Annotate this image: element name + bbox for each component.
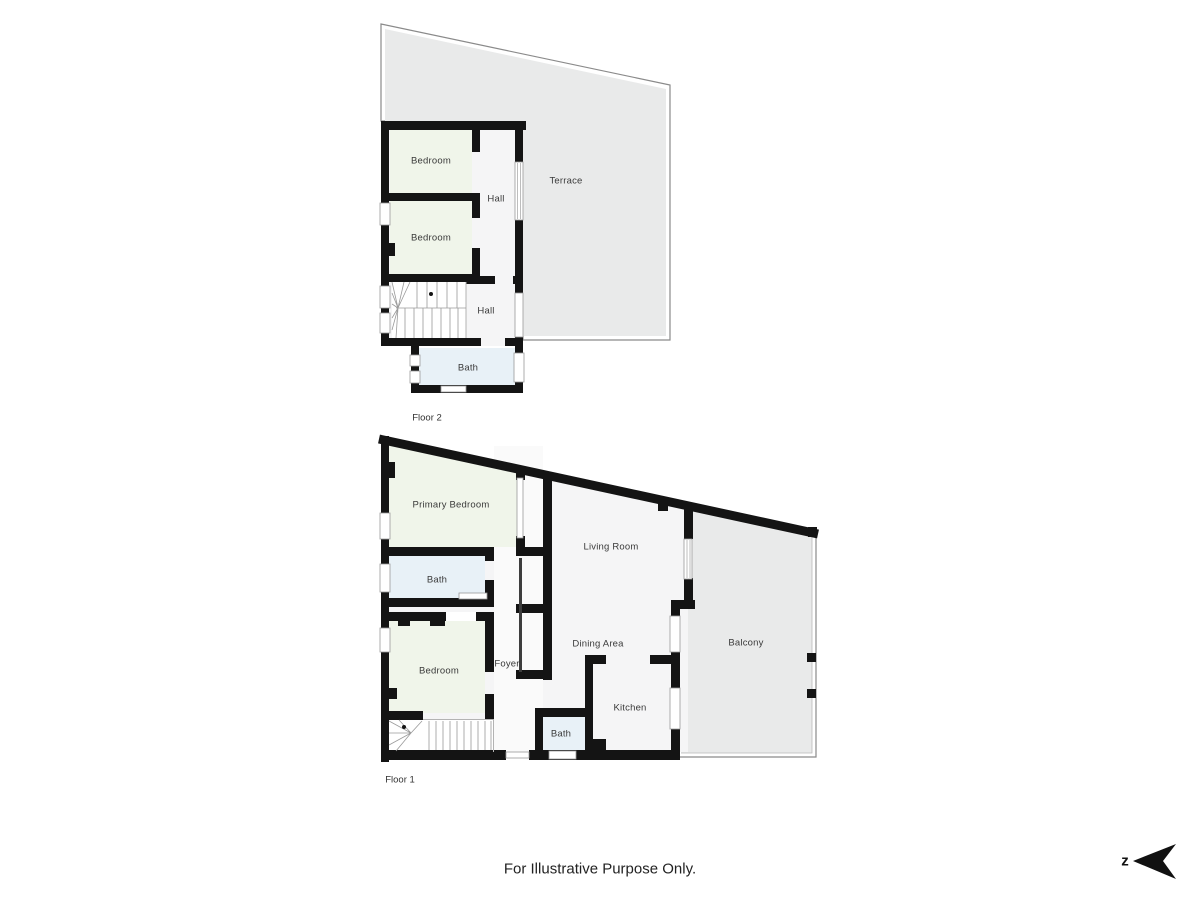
balcony-floor [681, 510, 812, 753]
wall [513, 276, 523, 284]
wall [671, 600, 695, 609]
chimney-block [585, 739, 606, 752]
room-label-bedroom1: Bedroom [411, 156, 451, 167]
north-label: z [1121, 853, 1129, 870]
wall [585, 655, 593, 752]
wall [485, 621, 494, 672]
window [380, 313, 390, 333]
wall [658, 497, 668, 511]
room-label-bath-lower: Bath [551, 729, 571, 740]
wall [411, 385, 523, 393]
wall [381, 612, 494, 621]
window [670, 616, 680, 652]
wall [389, 462, 395, 478]
window [549, 751, 576, 759]
wall [515, 121, 523, 162]
window [514, 353, 524, 382]
window-niche [459, 593, 487, 599]
stairs1-floor [389, 719, 493, 752]
wardrobe-mark [398, 621, 410, 626]
room-label-living-room: Living Room [583, 542, 638, 553]
room-label-kitchen: Kitchen [613, 703, 646, 714]
room-label-hall-lower: Hall [477, 306, 494, 317]
window [380, 513, 390, 539]
window [410, 371, 420, 383]
room-label-bath-upper: Bath [427, 575, 447, 586]
stair-marker-dot [402, 725, 406, 729]
floor1-title: Floor 1 [385, 775, 415, 786]
floor2-plan [380, 24, 670, 393]
room-label-hall-upper: Hall [487, 194, 504, 205]
wall [472, 201, 480, 218]
balcony-post [807, 653, 816, 662]
wall [485, 694, 494, 719]
room-label-bath-floor2: Bath [458, 363, 478, 374]
wall [381, 338, 481, 346]
wall [684, 504, 693, 539]
window [410, 355, 420, 366]
foyer-partition [519, 558, 522, 672]
floor1-plan [379, 436, 818, 762]
wall [485, 547, 494, 561]
window [380, 203, 390, 225]
stair-marker-dot [429, 292, 433, 296]
room-label-dining-area: Dining Area [572, 639, 623, 650]
wall [381, 121, 389, 346]
floorplan-page: { "floor2": { "title": "Floor 2", "rooms… [0, 0, 1200, 900]
wall [535, 708, 585, 717]
room-label-balcony: Balcony [728, 638, 763, 649]
balcony-area [678, 510, 816, 757]
wall [505, 338, 523, 346]
wall [543, 475, 552, 680]
stairs2-floor [392, 281, 466, 339]
balcony-post [807, 689, 816, 698]
balcony-door [684, 539, 692, 579]
wall [381, 711, 423, 720]
wall [381, 193, 480, 201]
room-label-terrace: Terrace [549, 176, 582, 187]
floorplan-canvas [0, 0, 1200, 900]
floor2-title: Floor 2 [412, 413, 442, 424]
wardrobe-partition [517, 478, 523, 538]
window [670, 688, 680, 729]
room-label-foyer: Foyer [494, 659, 519, 670]
north-arrow-icon [1133, 844, 1176, 879]
entry-door [506, 752, 529, 758]
wall [466, 276, 495, 284]
window [380, 628, 390, 652]
window [380, 286, 390, 308]
wall [381, 750, 506, 760]
door-gap [446, 612, 476, 621]
wall [389, 243, 395, 256]
window [441, 386, 466, 392]
wall [381, 121, 526, 130]
wall [650, 655, 680, 664]
disclaimer-text: For Illustrative Purpose Only. [504, 861, 696, 878]
wall [381, 547, 491, 556]
window [380, 564, 390, 592]
window [515, 293, 523, 337]
balcony-corner [808, 527, 817, 537]
wardrobe-mark [430, 621, 445, 626]
terrace-door [515, 162, 523, 220]
room-label-bedroom2: Bedroom [411, 233, 451, 244]
room-label-bedroom-floor1: Bedroom [419, 666, 459, 677]
wall [472, 248, 480, 274]
room-label-primary-bedroom: Primary Bedroom [413, 500, 490, 511]
wall [381, 274, 480, 282]
wall [472, 121, 480, 152]
wall [389, 688, 397, 699]
